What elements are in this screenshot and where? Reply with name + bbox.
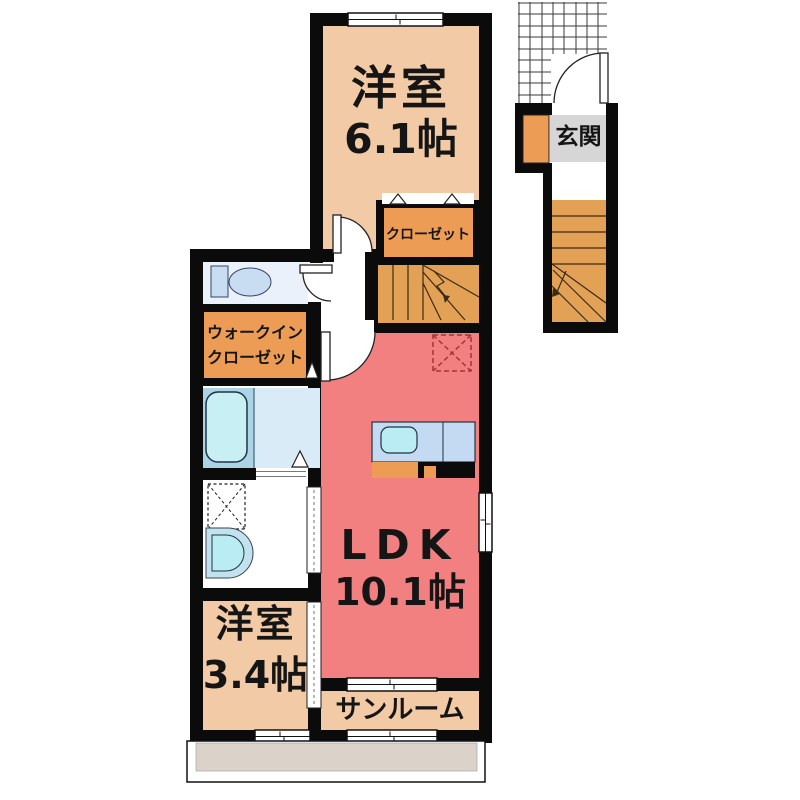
bathtub <box>206 392 247 462</box>
balcony <box>187 741 485 782</box>
western-room-1-label: 洋室 <box>323 64 479 112</box>
front-door <box>551 53 608 103</box>
toilet-bowl <box>229 268 271 296</box>
walk-in-closet-label-line2: クローゼット <box>202 346 308 371</box>
washroom <box>206 484 253 578</box>
appliance-space-marker <box>433 335 471 371</box>
stairs-upper <box>378 265 479 323</box>
ldk-label: LDK <box>321 524 479 567</box>
bathroom <box>203 388 320 480</box>
stairs-lower <box>552 200 606 322</box>
washroom-sliding-door <box>307 487 321 573</box>
walk-in-closet-label-line1: ウォークイン <box>202 321 308 346</box>
western-room-2-size: 3.4帖 <box>196 656 315 696</box>
kitchen-sink <box>381 427 417 453</box>
toilet-tank <box>211 266 228 297</box>
ldk-size: 10.1帖 <box>319 573 481 613</box>
sunroom-label: サンルーム <box>321 697 479 724</box>
entrance-label: 玄関 <box>550 125 607 149</box>
window-ldk-right <box>479 493 492 552</box>
closet-label: クローゼット <box>382 228 474 243</box>
closet-bifold-door <box>382 193 474 205</box>
kitchen-counter <box>372 422 475 478</box>
toilet-room <box>203 262 308 304</box>
western-room-2-label: 洋室 <box>203 605 308 645</box>
walk-in-closet-label: ウォークイン クローゼット <box>202 321 308 371</box>
shoe-cabinet <box>523 115 549 163</box>
western-room-1-size: 6.1帖 <box>315 118 487 161</box>
floor-plan: 洋室 6.1帖 クローゼット 玄関 ウォークイン クローゼット LDK 10.1… <box>0 0 800 800</box>
window-top <box>348 13 443 26</box>
window-sunroom-inner <box>347 678 437 691</box>
